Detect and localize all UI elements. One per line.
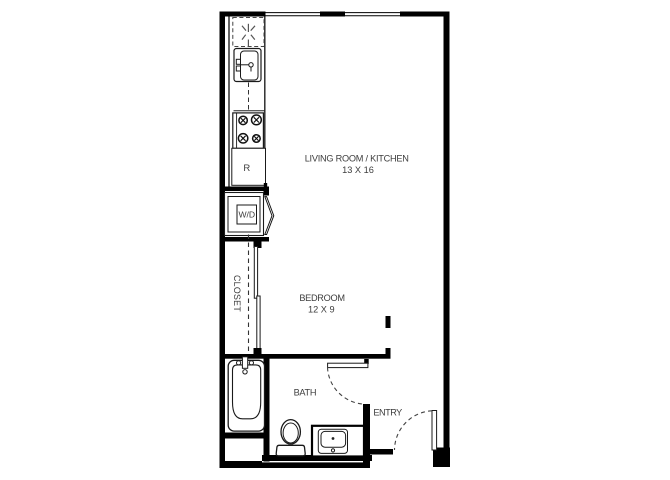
svg-text:13 X 16: 13 X 16 [342, 165, 374, 175]
svg-text:BATH: BATH [294, 388, 317, 398]
svg-text:R: R [243, 163, 250, 174]
svg-text:12 X 9: 12 X 9 [308, 304, 335, 314]
svg-text:W/D: W/D [238, 210, 255, 220]
svg-text:LIVING ROOM / KITCHEN: LIVING ROOM / KITCHEN [305, 153, 409, 163]
svg-text:BEDROOM: BEDROOM [299, 293, 344, 303]
svg-text:ENTRY: ENTRY [373, 408, 402, 418]
svg-text:CLOSET: CLOSET [232, 275, 242, 312]
